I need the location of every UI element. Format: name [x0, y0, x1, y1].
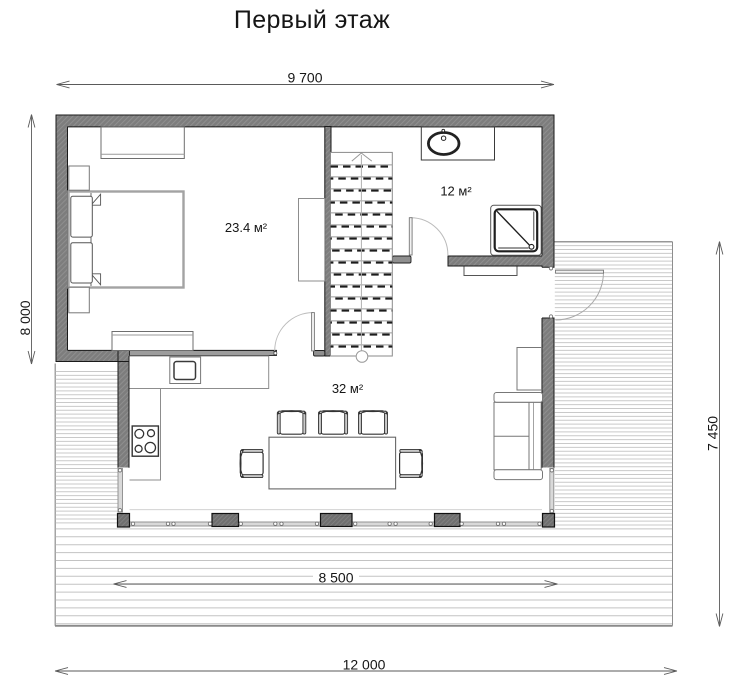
svg-text:12 000: 12 000: [343, 656, 386, 672]
svg-text:12 м²: 12 м²: [440, 183, 472, 198]
svg-text:7 450: 7 450: [705, 416, 721, 451]
svg-text:8 000: 8 000: [17, 300, 33, 335]
svg-text:Первый этаж: Первый этаж: [234, 6, 390, 34]
svg-text:8 500: 8 500: [318, 569, 353, 585]
svg-text:32 м²: 32 м²: [332, 381, 364, 396]
svg-text:9 700: 9 700: [287, 69, 322, 85]
svg-text:23.4 м²: 23.4 м²: [225, 220, 268, 235]
